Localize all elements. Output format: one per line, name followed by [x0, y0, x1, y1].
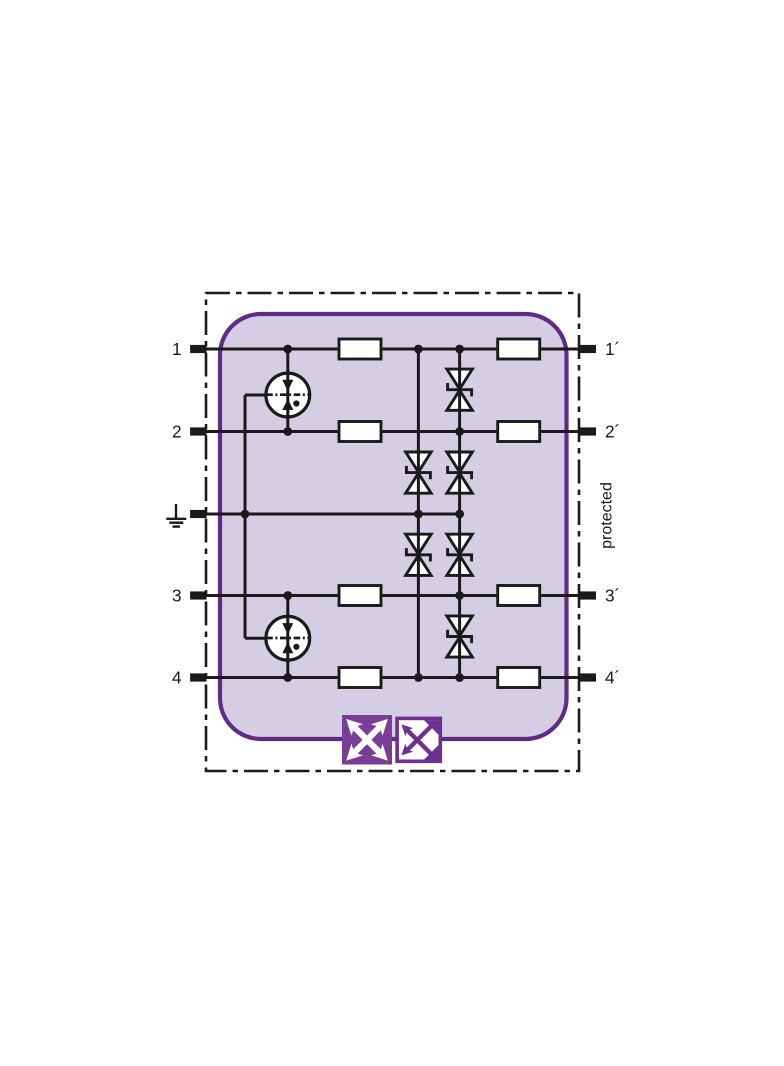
svg-text:4´: 4´ — [605, 667, 620, 687]
svg-text:4: 4 — [172, 667, 182, 687]
svg-text:3´: 3´ — [605, 585, 620, 605]
svg-text:2´: 2´ — [605, 421, 620, 441]
svg-text:protected: protected — [599, 482, 616, 549]
svg-text:2: 2 — [172, 421, 182, 441]
svg-text:1: 1 — [172, 339, 182, 359]
svg-text:3: 3 — [172, 585, 182, 605]
svg-text:1´: 1´ — [605, 339, 620, 359]
